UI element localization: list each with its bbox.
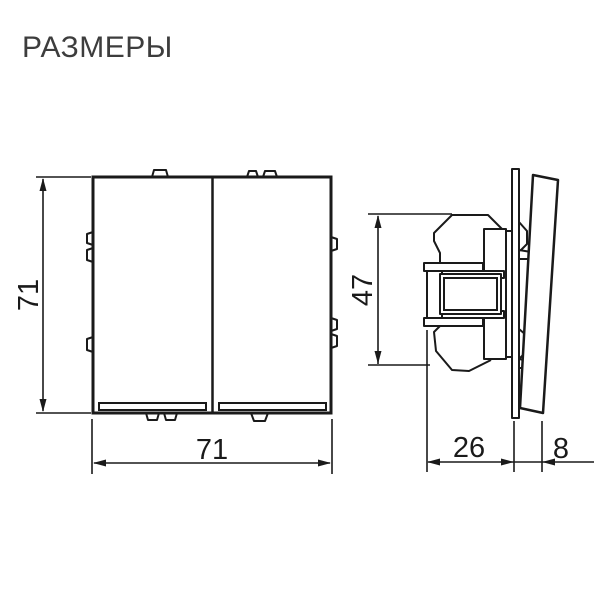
front-view — [87, 170, 337, 421]
switch-unit-box — [440, 274, 501, 314]
front-width-dimension: 71 — [92, 419, 332, 474]
front-height-label: 71 — [13, 279, 45, 311]
side-thickness-label: 8 — [553, 433, 569, 465]
side-depth-dimensions: 26 8 — [427, 330, 594, 472]
rocker-key — [520, 175, 558, 413]
side-depth-label: 26 — [453, 432, 485, 464]
front-height-dimension: 71 — [13, 177, 91, 413]
side-view — [424, 169, 558, 418]
page-title: РАЗМЕРЫ — [22, 33, 173, 63]
dimensions-page: РАЗМЕРЫ — [0, 0, 600, 599]
technical-drawing: 71 71 — [0, 0, 600, 599]
front-width-label: 71 — [196, 434, 228, 466]
frame-plate — [512, 169, 519, 418]
mechanism-housing-bottom — [434, 326, 491, 371]
side-height-dimension: 47 — [347, 214, 452, 365]
left-rocker-slot — [99, 403, 206, 410]
side-height-label: 47 — [347, 274, 379, 306]
right-rocker-slot — [219, 403, 326, 410]
